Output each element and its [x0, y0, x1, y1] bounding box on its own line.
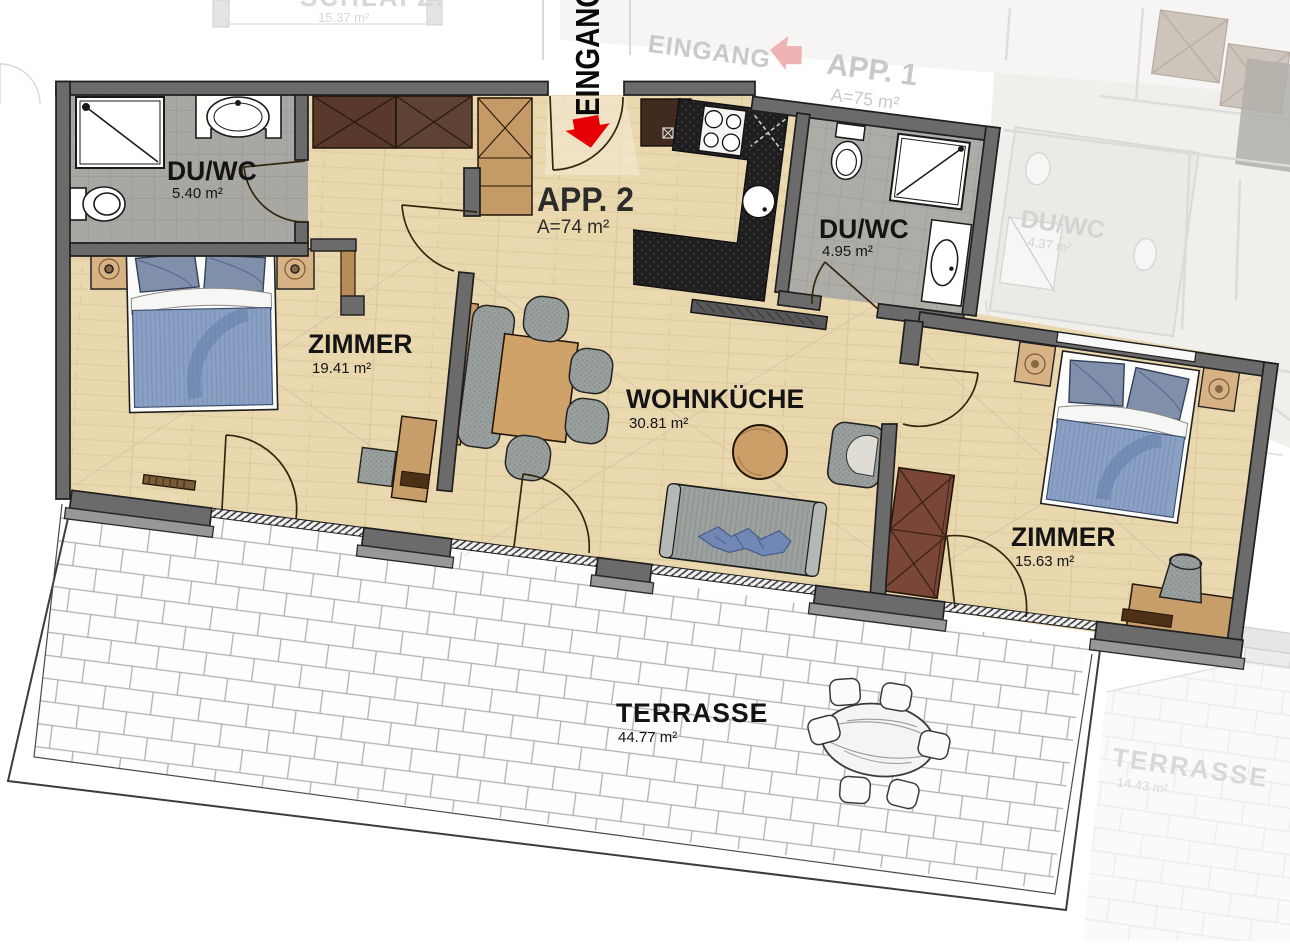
svg-text:4.95 m²: 4.95 m² [822, 243, 873, 260]
svg-text:EINGANG: EINGANG [569, 0, 606, 116]
svg-text:5.40 m²: 5.40 m² [172, 185, 223, 202]
svg-text:30.81 m²: 30.81 m² [629, 415, 688, 432]
svg-text:DU/WC: DU/WC [167, 156, 257, 186]
svg-text:19.41 m²: 19.41 m² [312, 360, 371, 377]
svg-text:ZIMMER: ZIMMER [1011, 522, 1116, 552]
svg-text:A=74 m²: A=74 m² [537, 217, 609, 238]
svg-text:APP. 2: APP. 2 [537, 181, 634, 219]
svg-text:ZIMMER: ZIMMER [308, 329, 413, 359]
svg-text:TERRASSE: TERRASSE [616, 698, 768, 728]
svg-text:44.77 m²: 44.77 m² [618, 729, 677, 746]
svg-text:15.37 m²: 15.37 m² [318, 10, 370, 25]
svg-text:15.63 m²: 15.63 m² [1015, 553, 1074, 570]
svg-text:WOHNKÜCHE: WOHNKÜCHE [626, 384, 804, 414]
svg-text:DU/WC: DU/WC [819, 214, 909, 244]
